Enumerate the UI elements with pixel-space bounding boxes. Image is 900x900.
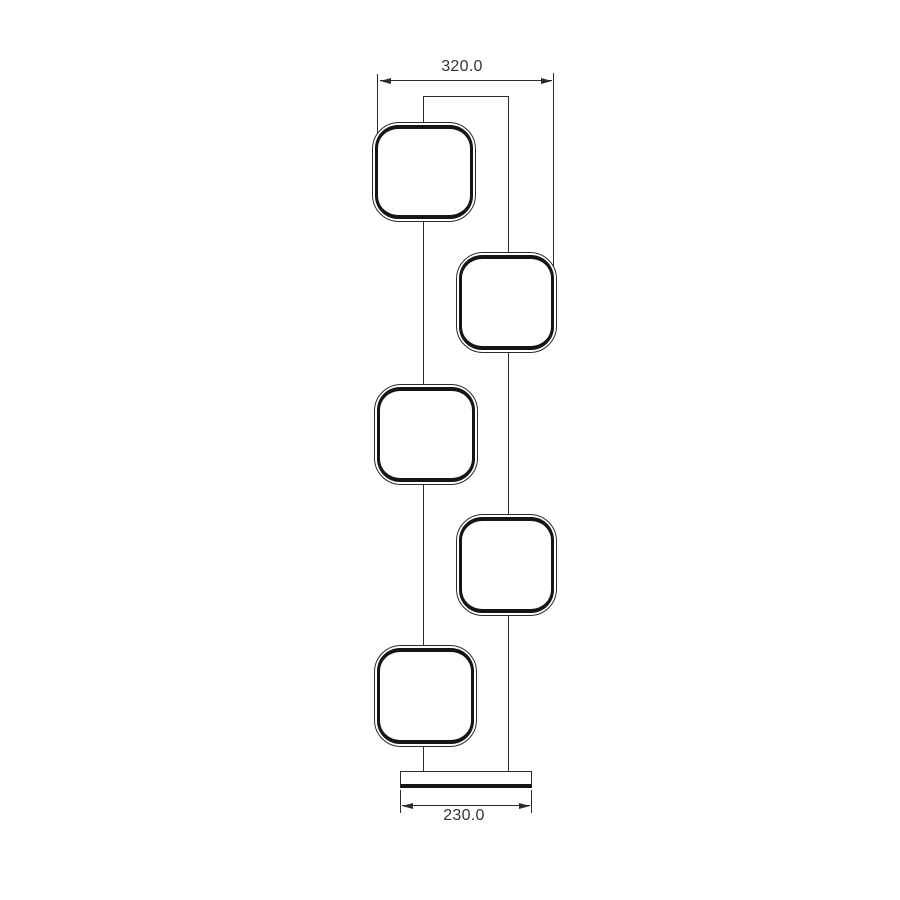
technical-drawing-canvas: 320.0 230.0 bbox=[0, 0, 900, 900]
lamp-head-2 bbox=[456, 252, 557, 353]
lamp-head-1 bbox=[372, 122, 476, 222]
extension-line-bottom-right bbox=[531, 790, 532, 813]
base-width-dimension-label: 230.0 bbox=[414, 807, 514, 825]
lamp-head-3-ring bbox=[377, 387, 475, 482]
overall-width-dimension-label: 320.0 bbox=[412, 58, 512, 76]
extension-line-top-right bbox=[553, 73, 554, 270]
pole-right bbox=[508, 96, 509, 773]
top-bridge-bar bbox=[423, 96, 509, 97]
lamp-head-4-ring bbox=[459, 517, 554, 613]
lamp-head-3 bbox=[374, 384, 478, 485]
dimension-arrow-right-icon bbox=[519, 803, 530, 809]
lamp-head-2-ring bbox=[459, 255, 554, 350]
overall-width-dimension-line bbox=[380, 80, 552, 81]
lamp-head-5 bbox=[374, 645, 477, 747]
lamp-head-1-ring bbox=[375, 125, 473, 219]
extension-line-bottom-left bbox=[400, 790, 401, 813]
lamp-head-5-ring bbox=[377, 648, 474, 744]
dimension-arrow-left-icon bbox=[402, 803, 413, 809]
dimension-arrow-left-icon bbox=[380, 78, 391, 84]
lamp-base bbox=[400, 771, 532, 788]
lamp-head-4 bbox=[456, 514, 557, 616]
dimension-arrow-right-icon bbox=[541, 78, 552, 84]
